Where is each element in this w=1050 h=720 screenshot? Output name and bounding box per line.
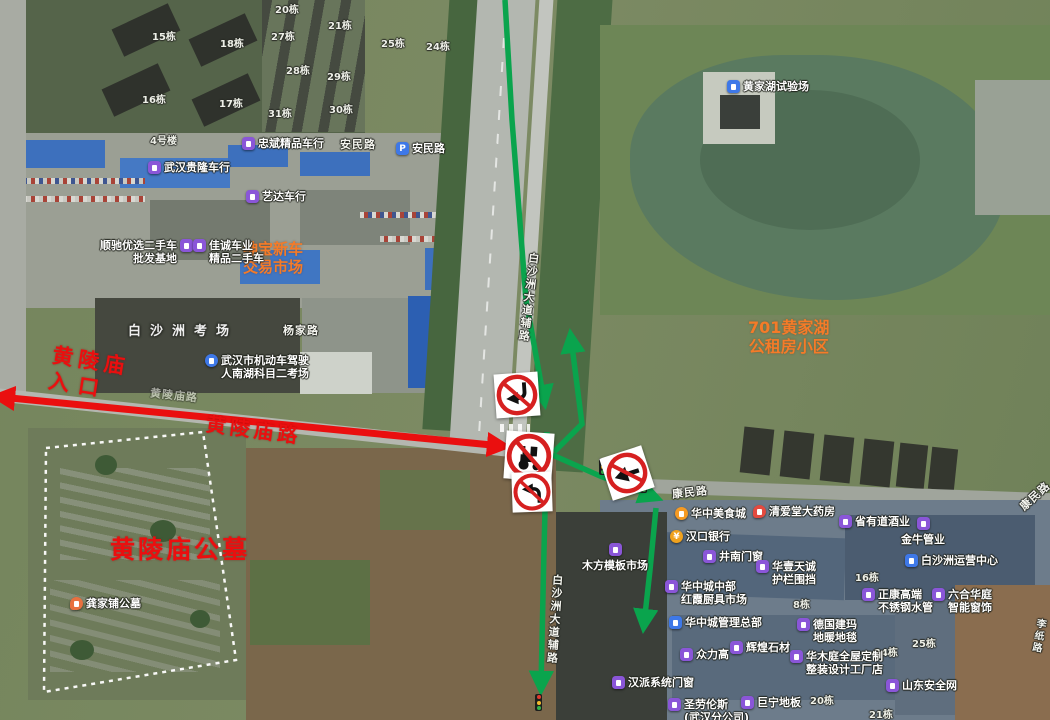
building-label: 24栋 — [426, 38, 450, 53]
shop-pin-icon — [756, 560, 769, 573]
no-left-turn-sign — [494, 372, 541, 419]
parked-cars-row — [15, 178, 145, 184]
poi-zhengkang-steel-pipes[interactable]: 正康高端 不锈钢水管 — [862, 588, 933, 614]
company-pin-icon — [727, 80, 740, 93]
poi-huayi-tiancheng-fences[interactable]: 华壹天诚 护栏围挡 — [756, 560, 816, 586]
cemetery-annotation: 黄陵庙公墓 — [110, 530, 250, 566]
company-pin-icon — [669, 616, 682, 629]
warehouse-blue-roof — [300, 152, 370, 176]
apartment-tower — [780, 431, 815, 480]
building-label: 29栋 — [327, 68, 351, 83]
building-label: 20栋 — [810, 692, 834, 707]
bank-pin-icon — [670, 530, 683, 543]
shop-pin-icon — [917, 517, 930, 530]
food-pin-icon — [675, 507, 688, 520]
building-label: 31栋 — [268, 105, 292, 120]
building-label: 15栋 — [152, 28, 176, 43]
building-label: 18栋 — [220, 35, 244, 50]
poi-hongxia-kitchenware-market[interactable]: 华中城中部 红霞厨具市场 — [665, 580, 747, 606]
poi-huazhongcheng-headquarters[interactable]: 华中城管理总部 — [669, 616, 762, 629]
building-label: 16栋 — [855, 569, 879, 584]
satellite-map-canvas[interactable]: 安民路 杨家路 康民路 康民路 白沙洲大道辅路 白沙洲大道辅路 李纸路 黄陵庙路… — [0, 0, 1050, 720]
building-label: 27栋 — [271, 28, 295, 43]
company-pin-icon — [905, 554, 918, 567]
poi-st-lawrence-wuhan[interactable]: 圣劳伦斯 (武汉分公司) — [668, 698, 749, 720]
shop-pin-icon — [180, 239, 193, 252]
shop-pin-icon — [730, 641, 743, 654]
poi-shandong-safety-net[interactable]: 山东安全网 — [886, 679, 957, 692]
road-label-anmin: 安民路 — [340, 136, 376, 152]
shop-pin-icon — [790, 650, 803, 663]
poi-hanpai-windows[interactable]: 汉派系统门窗 — [612, 676, 694, 689]
poi-zhongligao[interactable]: 众力高 — [680, 648, 729, 661]
building-label: 8栋 — [793, 596, 810, 611]
poi-driving-test-site[interactable]: 武汉市机动车驾驶 人南湖科目二考场 — [205, 354, 309, 380]
building-label: 25栋 — [381, 35, 405, 50]
shop-pin-icon — [612, 676, 625, 689]
building-label: 21栋 — [328, 17, 352, 32]
pharmacy-pin-icon — [753, 505, 766, 518]
poi-deguo-jianma-floor-heating[interactable]: 德国建玛 地暖地毯 — [797, 618, 857, 644]
west-road — [0, 0, 26, 400]
public-housing-label: 701黄家湖 公租房小区 — [748, 318, 829, 356]
traffic-light-icon — [535, 694, 542, 711]
shop-pin-icon — [665, 580, 678, 593]
no-left-turn-sign — [511, 471, 552, 512]
apartment-tower — [820, 435, 855, 484]
poi-jingnan-doors-windows[interactable]: 井南门窗 — [703, 550, 763, 563]
building-label: 17栋 — [219, 95, 243, 110]
northeast-block — [975, 80, 1050, 215]
shop-pin-icon — [680, 648, 693, 661]
parked-cars-row — [15, 196, 145, 202]
shop-pin-icon — [839, 515, 852, 528]
poi-huamuting-custom-factory[interactable]: 华木庭全屋定制 整装设计工厂店 — [790, 650, 883, 676]
shop-pin-icon — [242, 137, 255, 150]
poi-anmin-road-parking[interactable]: 安民路 — [396, 142, 445, 155]
building-label: 25栋 — [912, 635, 936, 650]
poi-zhongbin-boutique-cars[interactable]: 忠斌精品车行 — [242, 137, 324, 150]
poi-hankou-bank[interactable]: 汉口银行 — [670, 530, 730, 543]
tree — [95, 455, 117, 475]
building-label: 16栋 — [142, 91, 166, 106]
poi-huangjiahu-test-field[interactable]: 黄家湖试验场 — [727, 80, 809, 93]
shop-pin-icon — [862, 588, 875, 601]
field-green-patch — [250, 560, 370, 645]
test-field-court — [720, 95, 760, 129]
apartment-tower — [860, 439, 895, 488]
shop-pin-icon — [741, 696, 754, 709]
poi-huihuang-stone[interactable]: 辉煌石材 — [730, 641, 790, 654]
poi-juning-flooring[interactable]: 巨宁地板 — [741, 696, 801, 709]
shop-pin-icon — [193, 239, 206, 252]
white-building — [300, 352, 372, 394]
building-label: 28栋 — [286, 62, 310, 77]
poi-qingaitang-pharmacy[interactable]: 清爱堂大药房 — [753, 505, 835, 518]
poi-baishazhou-operations-center[interactable]: 白沙洲运营中心 — [905, 554, 998, 567]
poi-gongjiapu-cemetery[interactable]: 龚家铺公墓 — [70, 597, 141, 610]
shop-pin-icon — [886, 679, 899, 692]
poi-mufang-formwork-market[interactable]: 木方模板市场 — [575, 543, 655, 572]
shop-pin-icon — [932, 588, 945, 601]
poi-liuhe-huating-blinds[interactable]: 六合华庭 智能窗饰 — [932, 588, 992, 614]
field-green-patch — [380, 470, 470, 530]
poi-yida-cars[interactable]: 艺达车行 — [246, 190, 306, 203]
road-label-yangjia: 杨家路 — [283, 322, 319, 338]
apartment-tower — [896, 443, 928, 490]
driving-school-icon — [205, 354, 218, 367]
building-label: 21栋 — [869, 706, 893, 720]
tree — [190, 610, 210, 628]
parking-icon — [396, 142, 409, 155]
poi-jiacheng-used-cars[interactable]: 佳诚车业 精品二手车 — [193, 239, 264, 265]
poi-jinniu-pipes[interactable]: 金牛管业 — [895, 517, 951, 546]
shop-pin-icon — [668, 698, 681, 711]
shop-pin-icon — [246, 190, 259, 203]
building-label: 4号楼 — [150, 132, 177, 147]
building-label: 20栋 — [275, 1, 299, 16]
apartment-tower — [740, 427, 775, 476]
cemetery-pin-icon — [70, 597, 83, 610]
shop-pin-icon — [703, 550, 716, 563]
exam-field-label: 白沙洲考场 — [128, 320, 238, 339]
building-label: 30栋 — [329, 101, 353, 116]
shop-pin-icon — [148, 161, 161, 174]
poi-huazhong-food-city[interactable]: 华中美食城 — [675, 507, 746, 520]
shop-pin-icon — [797, 618, 810, 631]
tree — [70, 640, 94, 660]
apartment-tower — [928, 447, 958, 491]
shop-pin-icon — [609, 543, 622, 556]
poi-wuhan-guilong-cars[interactable]: 武汉贵隆车行 — [148, 161, 230, 174]
poi-shunchi-used-cars[interactable]: 顺驰优选二手车 批发基地 — [100, 239, 193, 265]
